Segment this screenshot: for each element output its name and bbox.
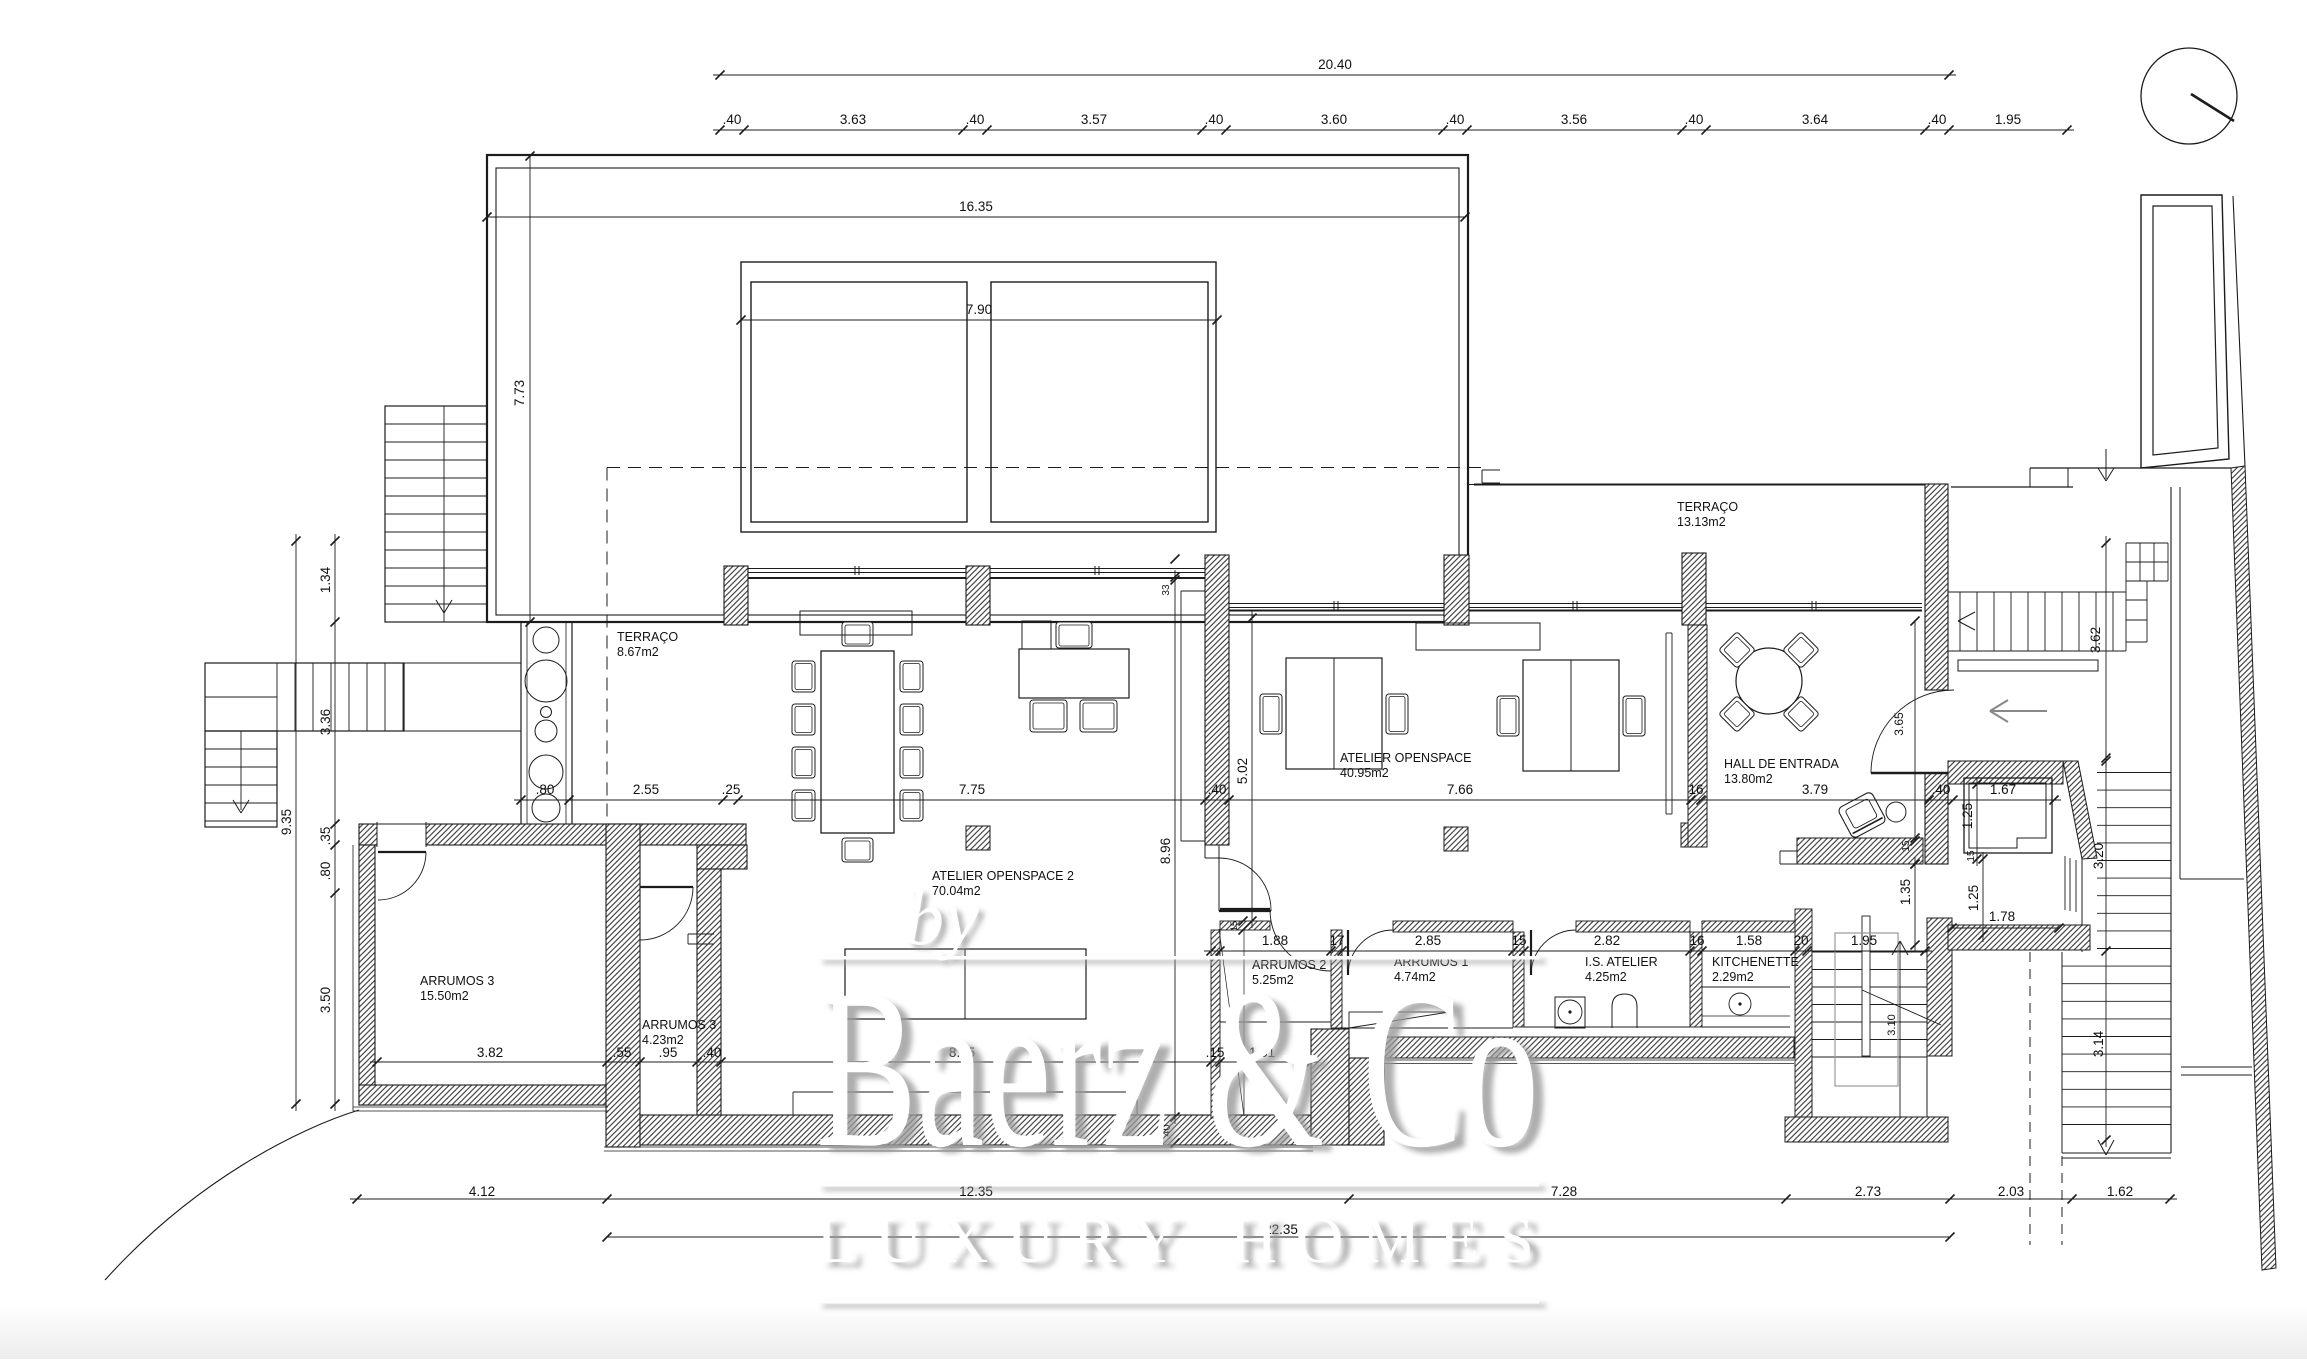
svg-text:2.03: 2.03 xyxy=(1998,1184,2024,1199)
svg-text:Baerz & Co: Baerz & Co xyxy=(816,943,1539,1195)
svg-text:8.96: 8.96 xyxy=(1158,838,1173,864)
svg-text:3.60: 3.60 xyxy=(1321,112,1347,127)
svg-text:1.35: 1.35 xyxy=(1898,879,1913,905)
svg-text:.25: .25 xyxy=(722,782,741,797)
svg-text:2.73: 2.73 xyxy=(1855,1184,1881,1199)
svg-text:15: 15 xyxy=(1229,921,1239,931)
svg-text:.40: .40 xyxy=(1205,112,1224,127)
svg-text:33: 33 xyxy=(1161,584,1172,596)
svg-text:20: 20 xyxy=(1793,933,1808,948)
svg-text:ARRUMOS 3: ARRUMOS 3 xyxy=(642,1018,716,1032)
svg-text:9.35: 9.35 xyxy=(279,809,294,835)
svg-text:4.25m2: 4.25m2 xyxy=(1585,970,1627,984)
svg-text:3.63: 3.63 xyxy=(840,112,866,127)
svg-text:7.66: 7.66 xyxy=(1447,782,1473,797)
svg-text:.55: .55 xyxy=(613,1045,632,1060)
svg-text:.40: .40 xyxy=(1685,112,1704,127)
svg-text:3.65: 3.65 xyxy=(1892,712,1906,736)
svg-text:.80: .80 xyxy=(318,862,333,881)
svg-text:ARRUMOS 3: ARRUMOS 3 xyxy=(420,974,494,988)
svg-text:TERRAÇO: TERRAÇO xyxy=(1677,500,1738,514)
svg-text:2.82: 2.82 xyxy=(1594,933,1620,948)
svg-text:4.23m2: 4.23m2 xyxy=(642,1033,684,1047)
svg-text:40.95m2: 40.95m2 xyxy=(1340,766,1389,780)
svg-text:7.75: 7.75 xyxy=(959,782,985,797)
svg-text:1.95: 1.95 xyxy=(1851,933,1877,948)
svg-text:13.13m2: 13.13m2 xyxy=(1677,515,1726,529)
svg-text:3.57: 3.57 xyxy=(1081,112,1107,127)
svg-text:7.28: 7.28 xyxy=(1551,1184,1577,1199)
svg-text:KITCHENETTE: KITCHENETTE xyxy=(1712,955,1799,969)
svg-text:8.67m2: 8.67m2 xyxy=(617,645,659,659)
svg-text:3.64: 3.64 xyxy=(1802,112,1829,127)
svg-text:4.12: 4.12 xyxy=(469,1184,495,1199)
svg-text:HALL DE ENTRADA: HALL DE ENTRADA xyxy=(1724,757,1840,771)
svg-text:.35: .35 xyxy=(318,827,333,846)
svg-text:13.80m2: 13.80m2 xyxy=(1724,772,1773,786)
svg-text:.40: .40 xyxy=(703,1045,722,1060)
svg-text:1.95: 1.95 xyxy=(1995,112,2021,127)
svg-text:I.S. ATELIER: I.S. ATELIER xyxy=(1585,955,1658,969)
svg-text:2.29m2: 2.29m2 xyxy=(1712,970,1754,984)
svg-text:3.36: 3.36 xyxy=(318,709,333,735)
svg-text:1.25: 1.25 xyxy=(1960,803,1975,829)
svg-text:20.40: 20.40 xyxy=(1318,57,1352,72)
svg-text:16.35: 16.35 xyxy=(959,199,993,214)
svg-text:.40: .40 xyxy=(966,112,985,127)
svg-text:1.78: 1.78 xyxy=(1989,909,2015,924)
svg-text:3.79: 3.79 xyxy=(1802,782,1828,797)
svg-text:.40: .40 xyxy=(1928,112,1947,127)
svg-text:16: 16 xyxy=(1688,782,1703,797)
svg-text:1.34: 1.34 xyxy=(318,566,333,593)
svg-text:7.90: 7.90 xyxy=(966,302,992,317)
svg-text:7.73: 7.73 xyxy=(512,380,527,406)
svg-text:15.50m2: 15.50m2 xyxy=(420,989,469,1003)
svg-text:3.10: 3.10 xyxy=(1886,1014,1898,1035)
svg-text:.40: .40 xyxy=(723,112,742,127)
svg-text:16: 16 xyxy=(1689,933,1704,948)
svg-text:3.50: 3.50 xyxy=(318,987,333,1013)
svg-text:TERRAÇO: TERRAÇO xyxy=(617,630,678,644)
svg-text:ATELIER OPENSPACE: ATELIER OPENSPACE xyxy=(1340,751,1472,765)
svg-text:.40: .40 xyxy=(1208,782,1227,797)
svg-text:1.25: 1.25 xyxy=(1966,885,1981,911)
svg-text:1.58: 1.58 xyxy=(1736,933,1762,948)
svg-text:3.82: 3.82 xyxy=(477,1045,503,1060)
svg-text:.80: .80 xyxy=(536,782,555,797)
svg-text:3.62: 3.62 xyxy=(2088,627,2103,653)
svg-text:1.62: 1.62 xyxy=(2107,1184,2133,1199)
svg-text:1.67: 1.67 xyxy=(1990,782,2016,797)
svg-text:.40: .40 xyxy=(1446,112,1465,127)
svg-text:.40: .40 xyxy=(1932,782,1951,797)
svg-text:3.56: 3.56 xyxy=(1561,112,1587,127)
svg-text:3.14: 3.14 xyxy=(2091,1030,2106,1057)
svg-text:15: 15 xyxy=(1901,840,1912,852)
svg-text:.95: .95 xyxy=(659,1045,678,1060)
svg-text:15: 15 xyxy=(1966,850,1977,862)
svg-text:5.02: 5.02 xyxy=(1235,758,1250,784)
svg-text:2.55: 2.55 xyxy=(633,782,659,797)
